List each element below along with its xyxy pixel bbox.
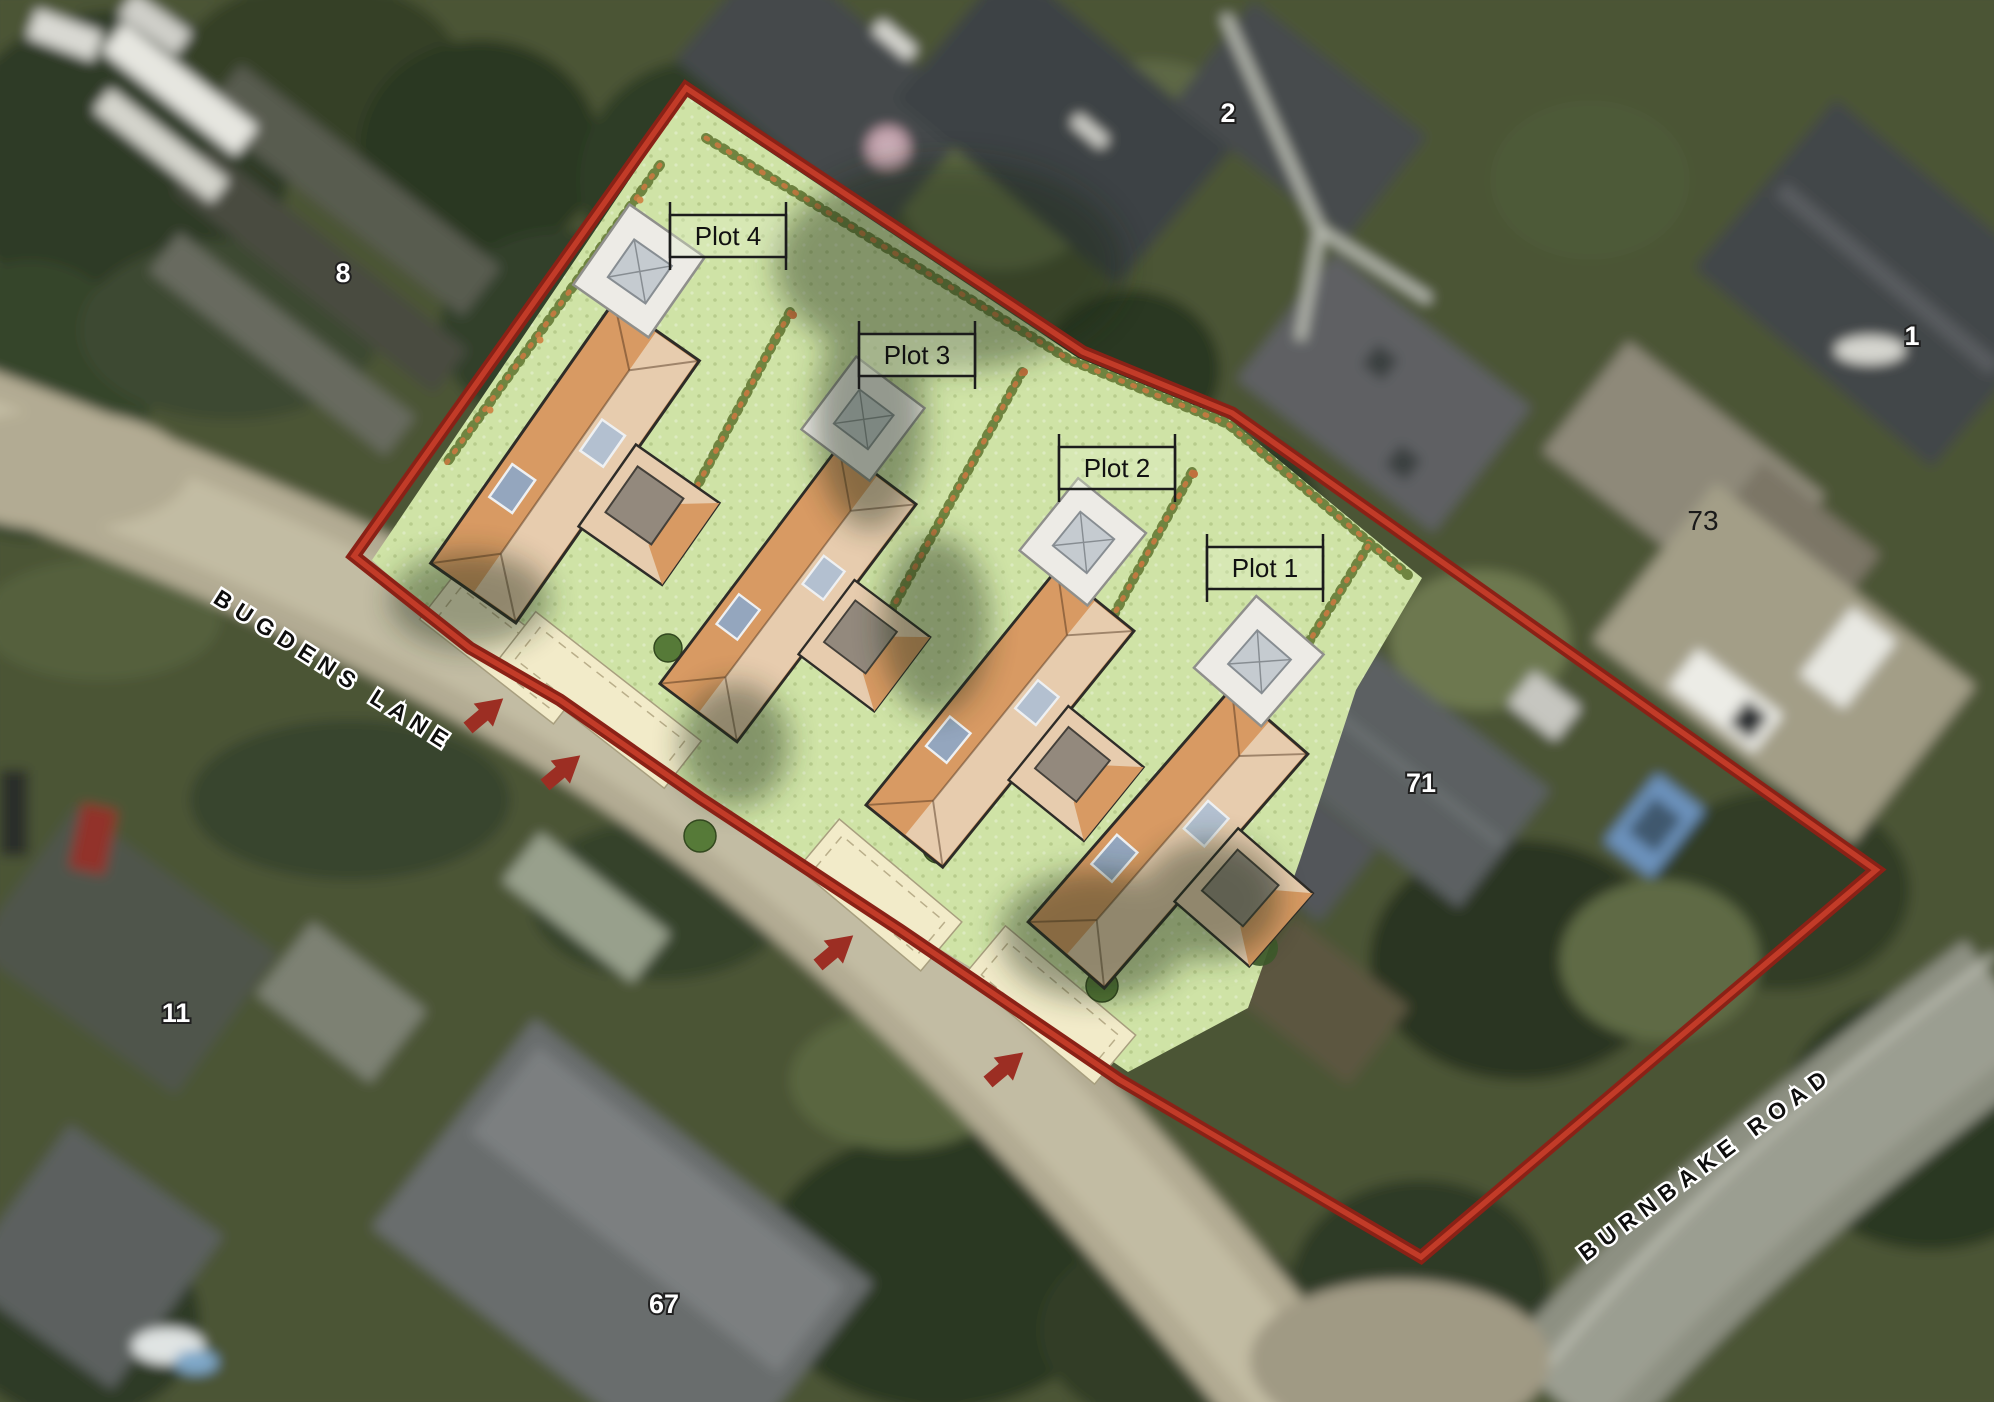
house-number-2: 2 (1220, 98, 1235, 128)
plot-label-3-text: Plot 3 (884, 340, 951, 370)
site-plan-aerial-view: Plot 4 Plot 3 Plot 2 Plot 1 BUGDENS LANE… (0, 0, 1994, 1402)
plot-label-4-text: Plot 4 (695, 221, 762, 251)
house-number-73: 73 (1687, 505, 1718, 536)
plot-label-2-text: Plot 2 (1084, 453, 1151, 483)
house-number-8: 8 (335, 258, 350, 288)
plot-label-1-text: Plot 1 (1232, 553, 1299, 583)
house-number-1: 1 (1904, 321, 1919, 351)
house-number-67: 67 (649, 1289, 679, 1319)
house-number-11: 11 (162, 998, 191, 1028)
house-number-71: 71 (1406, 768, 1436, 798)
